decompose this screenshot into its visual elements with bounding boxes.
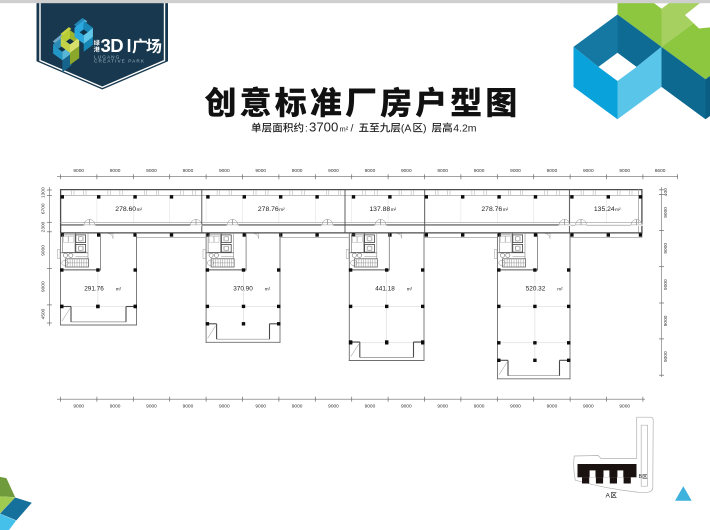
svg-text:m²: m² bbox=[137, 207, 143, 212]
svg-text:9000: 9000 bbox=[73, 168, 84, 174]
svg-text:m²: m² bbox=[279, 207, 285, 212]
svg-text:/: / bbox=[351, 123, 354, 135]
svg-text:): ) bbox=[423, 123, 427, 135]
svg-text:3700: 3700 bbox=[309, 120, 338, 135]
svg-text:9000: 9000 bbox=[255, 168, 266, 174]
svg-text:m²: m² bbox=[503, 207, 509, 212]
svg-text:m²: m² bbox=[407, 287, 413, 292]
svg-text:9000: 9000 bbox=[663, 315, 669, 326]
svg-text:3D: 3D bbox=[101, 35, 124, 56]
svg-text:9000: 9000 bbox=[437, 404, 448, 410]
svg-text:135.24: 135.24 bbox=[594, 206, 615, 213]
svg-text:CREATIVE PARK: CREATIVE PARK bbox=[94, 59, 145, 64]
svg-text:9000: 9000 bbox=[365, 168, 376, 174]
svg-text:m²: m² bbox=[265, 287, 271, 292]
svg-text:9000: 9000 bbox=[292, 404, 303, 410]
svg-text:9000: 9000 bbox=[510, 404, 521, 410]
svg-text:9000: 9000 bbox=[663, 279, 669, 290]
svg-text:6700: 6700 bbox=[41, 203, 47, 214]
svg-text:m²: m² bbox=[340, 125, 349, 134]
svg-text:4.2m: 4.2m bbox=[453, 123, 477, 135]
svg-text:9000: 9000 bbox=[547, 404, 558, 410]
svg-text:9000: 9000 bbox=[183, 404, 194, 410]
svg-text:370.90: 370.90 bbox=[233, 286, 253, 293]
svg-text:9000: 9000 bbox=[219, 404, 230, 410]
svg-text:9000: 9000 bbox=[73, 404, 84, 410]
svg-text:9000: 9000 bbox=[146, 404, 157, 410]
svg-text:9000: 9000 bbox=[401, 168, 412, 174]
svg-text:9000: 9000 bbox=[328, 168, 339, 174]
svg-text:2300: 2300 bbox=[41, 221, 47, 232]
svg-text:8600: 8600 bbox=[655, 168, 666, 174]
svg-text::: : bbox=[305, 124, 308, 135]
svg-text:278.76: 278.76 bbox=[481, 206, 502, 213]
svg-text:9000: 9000 bbox=[255, 404, 266, 410]
svg-text:9000: 9000 bbox=[41, 245, 47, 256]
svg-text:9000: 9000 bbox=[401, 404, 412, 410]
svg-text:9000: 9000 bbox=[474, 404, 485, 410]
svg-text:9000: 9000 bbox=[510, 168, 521, 174]
svg-text:m²: m² bbox=[615, 207, 621, 212]
svg-text:9000: 9000 bbox=[474, 168, 485, 174]
svg-text:9000: 9000 bbox=[663, 243, 669, 254]
svg-text:441.18: 441.18 bbox=[375, 286, 395, 293]
svg-text:4500: 4500 bbox=[41, 308, 47, 319]
svg-text:(A: (A bbox=[401, 123, 412, 135]
svg-text:9000: 9000 bbox=[547, 168, 558, 174]
svg-text:m²: m² bbox=[116, 287, 122, 292]
svg-text:9000: 9000 bbox=[292, 168, 303, 174]
svg-text:9000: 9000 bbox=[437, 168, 448, 174]
svg-text:278.76: 278.76 bbox=[258, 206, 279, 213]
svg-text:9000: 9000 bbox=[365, 404, 376, 410]
svg-text:A: A bbox=[606, 492, 611, 499]
svg-text:1300: 1300 bbox=[41, 187, 47, 198]
svg-text:9000: 9000 bbox=[663, 351, 669, 362]
svg-text:m²: m² bbox=[557, 287, 563, 292]
svg-text:9000: 9000 bbox=[663, 207, 669, 218]
svg-text:400: 400 bbox=[663, 188, 669, 196]
svg-text:9000: 9000 bbox=[583, 168, 594, 174]
svg-text:9000: 9000 bbox=[619, 168, 630, 174]
svg-text:137.88: 137.88 bbox=[369, 206, 390, 213]
svg-text:520.32: 520.32 bbox=[526, 286, 546, 293]
svg-text:9000: 9000 bbox=[146, 168, 157, 174]
svg-text:9000: 9000 bbox=[41, 281, 47, 292]
svg-text:291.76: 291.76 bbox=[84, 286, 104, 293]
svg-text:9000: 9000 bbox=[583, 404, 594, 410]
svg-text:9000: 9000 bbox=[328, 404, 339, 410]
svg-text:m²: m² bbox=[391, 207, 397, 212]
svg-text:9000: 9000 bbox=[110, 168, 121, 174]
svg-text:9000: 9000 bbox=[219, 168, 230, 174]
svg-text:9000: 9000 bbox=[619, 404, 630, 410]
svg-text:9000: 9000 bbox=[110, 404, 121, 410]
svg-text:278.60: 278.60 bbox=[115, 206, 136, 213]
svg-text:9000: 9000 bbox=[183, 168, 194, 174]
